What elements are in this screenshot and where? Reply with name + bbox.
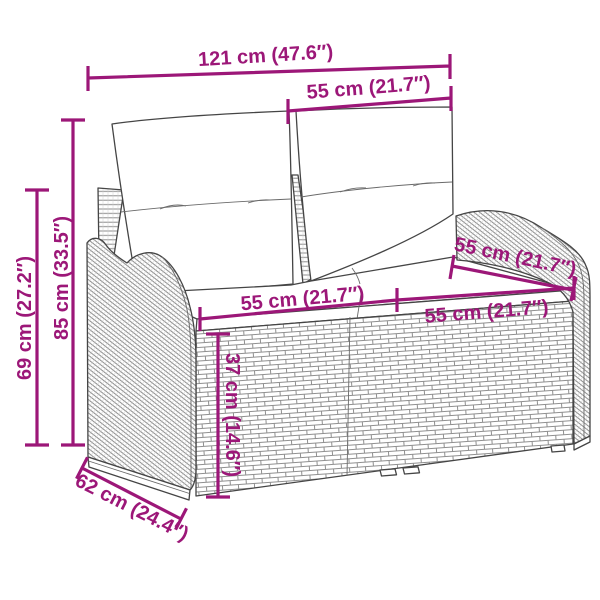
product-dimension-diagram: 121 cm (47.6″) 55 cm (21.7″) 85 cm (33.5… — [0, 0, 600, 600]
left-armrest — [87, 238, 196, 500]
dimension-arm-height: 69 cm (27.2″) — [14, 190, 49, 445]
dimension-overall-width-label: 121 cm (47.6″) — [197, 41, 333, 71]
dimension-back-section-width-label: 55 cm (21.7″) — [306, 72, 431, 104]
dimension-arm-height-label: 69 cm (27.2″) — [14, 256, 36, 380]
back-cushion-right — [296, 107, 453, 281]
dimension-seat-height-label: 37 cm (14.6″) — [221, 353, 243, 477]
dimension-overall-height: 85 cm (33.5″) — [51, 120, 85, 445]
sofa-dimension-illustration: 121 cm (47.6″) 55 cm (21.7″) 85 cm (33.5… — [0, 0, 600, 600]
base-front-panel — [196, 301, 573, 496]
dimension-overall-height-label: 85 cm (33.5″) — [51, 216, 73, 340]
